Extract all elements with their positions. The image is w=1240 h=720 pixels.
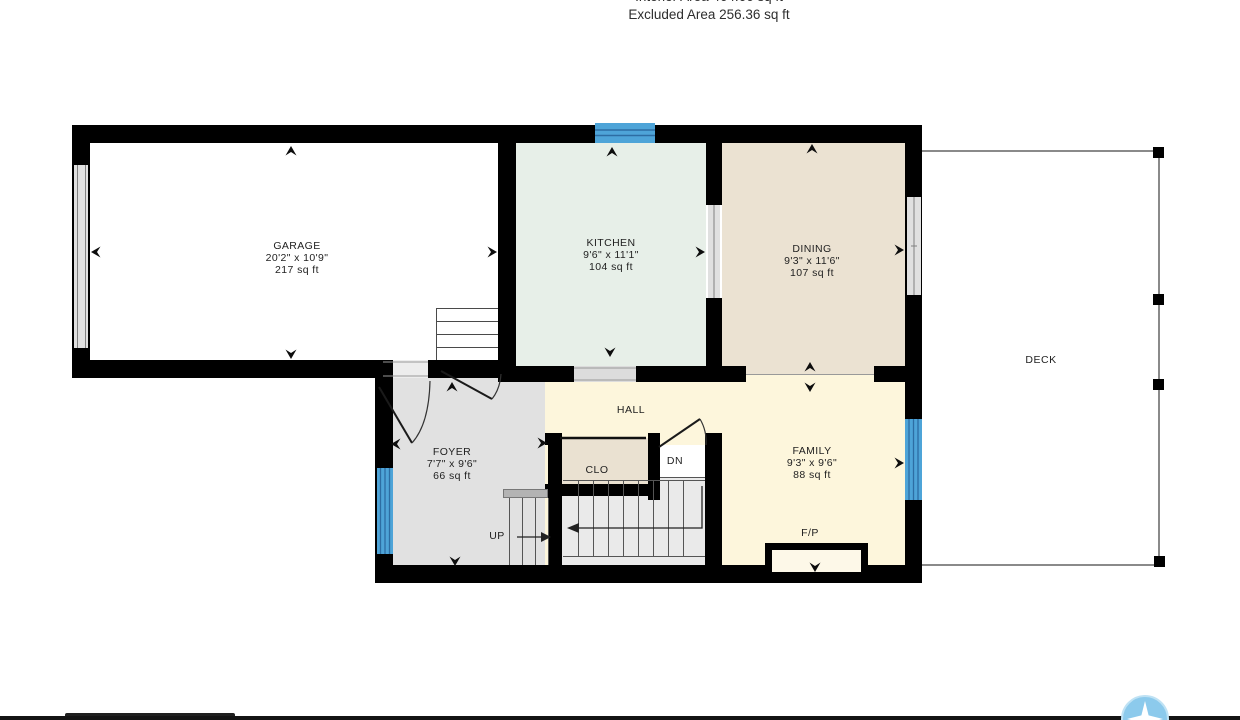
hall-label: HALL: [596, 404, 666, 416]
dining-opening-floor: [746, 366, 874, 375]
room-area: 88 sq ft: [737, 469, 887, 481]
room-area: 217 sq ft: [217, 264, 377, 276]
wall-right: [905, 125, 922, 583]
room-name: FAMILY: [737, 445, 887, 457]
room-dims: 20'2" x 10'9": [217, 252, 377, 264]
interior-area-text: Interior Area 464.66 sq ft: [559, 0, 859, 5]
family-window: [905, 419, 922, 500]
excluded-area-text: Excluded Area 256.36 sq ft: [559, 7, 859, 23]
floor-plan-page: Interior Area 464.66 sq ft Excluded Area…: [0, 0, 1240, 720]
room-label-dining: DINING 9'3" x 11'6" 107 sq ft: [732, 243, 892, 279]
deck-post: [1154, 556, 1165, 567]
room-name: KITCHEN: [531, 237, 691, 249]
room-name: FOYER: [377, 446, 527, 458]
hall-opening-sill: [574, 366, 636, 382]
wall-kitchen-dining-top: [706, 125, 722, 205]
room-label-garage: GARAGE 20'2" x 10'9" 217 sq ft: [217, 240, 377, 276]
deck-label: DECK: [986, 354, 1096, 366]
wall-closet-top-stub: [545, 433, 560, 445]
fireplace-label: F/P: [775, 527, 845, 539]
garage-window: [74, 165, 88, 348]
wall-closet-left: [548, 433, 562, 583]
wall-closet-bottom: [545, 484, 660, 496]
kitchen-dining-passthrough: [708, 205, 720, 298]
family-opening-floor: [746, 375, 874, 383]
kitchen-window: [595, 123, 655, 143]
stair-handrail-cap: [503, 489, 548, 498]
stairs-down-label: DN: [650, 455, 700, 467]
dining-window: [907, 197, 921, 295]
stairs-up-label: UP: [472, 530, 522, 542]
deck-post: [1153, 147, 1164, 158]
closet-label: CLO: [562, 464, 632, 476]
room-dims: 9'3" x 9'6": [737, 457, 887, 469]
wall-garage-bottom-left: [72, 360, 383, 378]
brand-logo-icon: [1121, 695, 1169, 720]
wall-hall-top-a: [498, 366, 574, 382]
footer-bar: [0, 716, 1240, 720]
room-name: DINING: [732, 243, 892, 255]
room-name: GARAGE: [217, 240, 377, 252]
wall-hall-top-b: [636, 366, 746, 382]
room-label-family: FAMILY 9'3" x 9'6" 88 sq ft: [737, 445, 887, 481]
deck-post: [1153, 379, 1164, 390]
room-label-kitchen: KITCHEN 9'6" x 11'1" 104 sq ft: [531, 237, 691, 273]
deck-post: [1153, 294, 1164, 305]
room-label-foyer: FOYER 7'7" x 9'6" 66 sq ft: [377, 446, 527, 482]
room-dims: 7'7" x 9'6": [377, 458, 527, 470]
pinwheel-icon: [1127, 701, 1163, 720]
wall-top: [72, 125, 922, 143]
room-area: 107 sq ft: [732, 267, 892, 279]
closet-floor: [557, 438, 648, 486]
wall-stairs-family: [705, 433, 722, 583]
room-dims: 9'6" x 11'1": [531, 249, 691, 261]
room-dims: 9'3" x 11'6": [732, 255, 892, 267]
wall-garage-kitchen: [498, 125, 516, 378]
room-area: 66 sq ft: [377, 470, 527, 482]
fireplace-box: [765, 543, 868, 579]
room-area: 104 sq ft: [531, 261, 691, 273]
